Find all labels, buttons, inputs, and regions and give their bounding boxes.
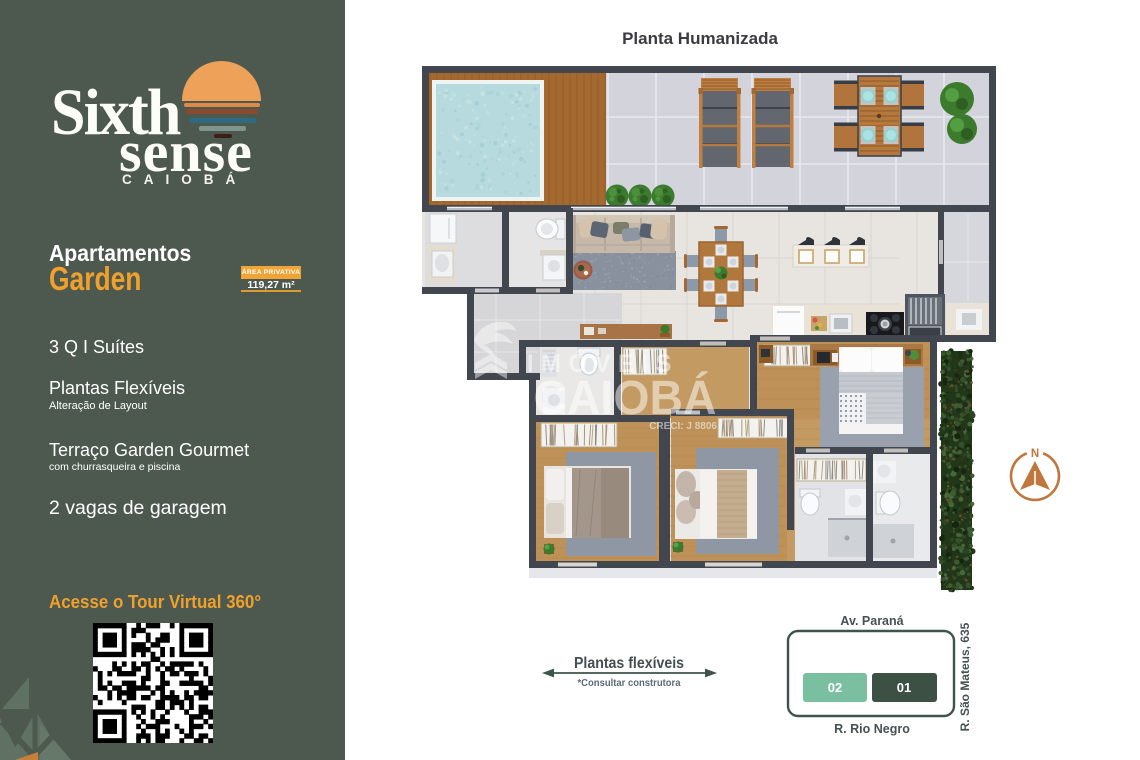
svg-text:Av. Paraná: Av. Paraná [840,614,903,628]
svg-text:CRECI: J 8806: CRECI: J 8806 [649,421,717,432]
svg-text:02: 02 [828,680,842,695]
svg-text:*Consultar construtora: *Consultar construtora [578,678,681,689]
svg-text:R. São Mateus, 635: R. São Mateus, 635 [958,622,972,731]
svg-text:01: 01 [897,680,911,695]
svg-text:N: N [1031,448,1039,460]
svg-text:Plantas flexíveis: Plantas flexíveis [574,655,684,672]
svg-text:R. Rio Negro: R. Rio Negro [834,722,910,736]
svg-text:CAIOBÁ: CAIOBÁ [534,371,717,425]
svg-text:Planta Humanizada: Planta Humanizada [622,29,778,48]
